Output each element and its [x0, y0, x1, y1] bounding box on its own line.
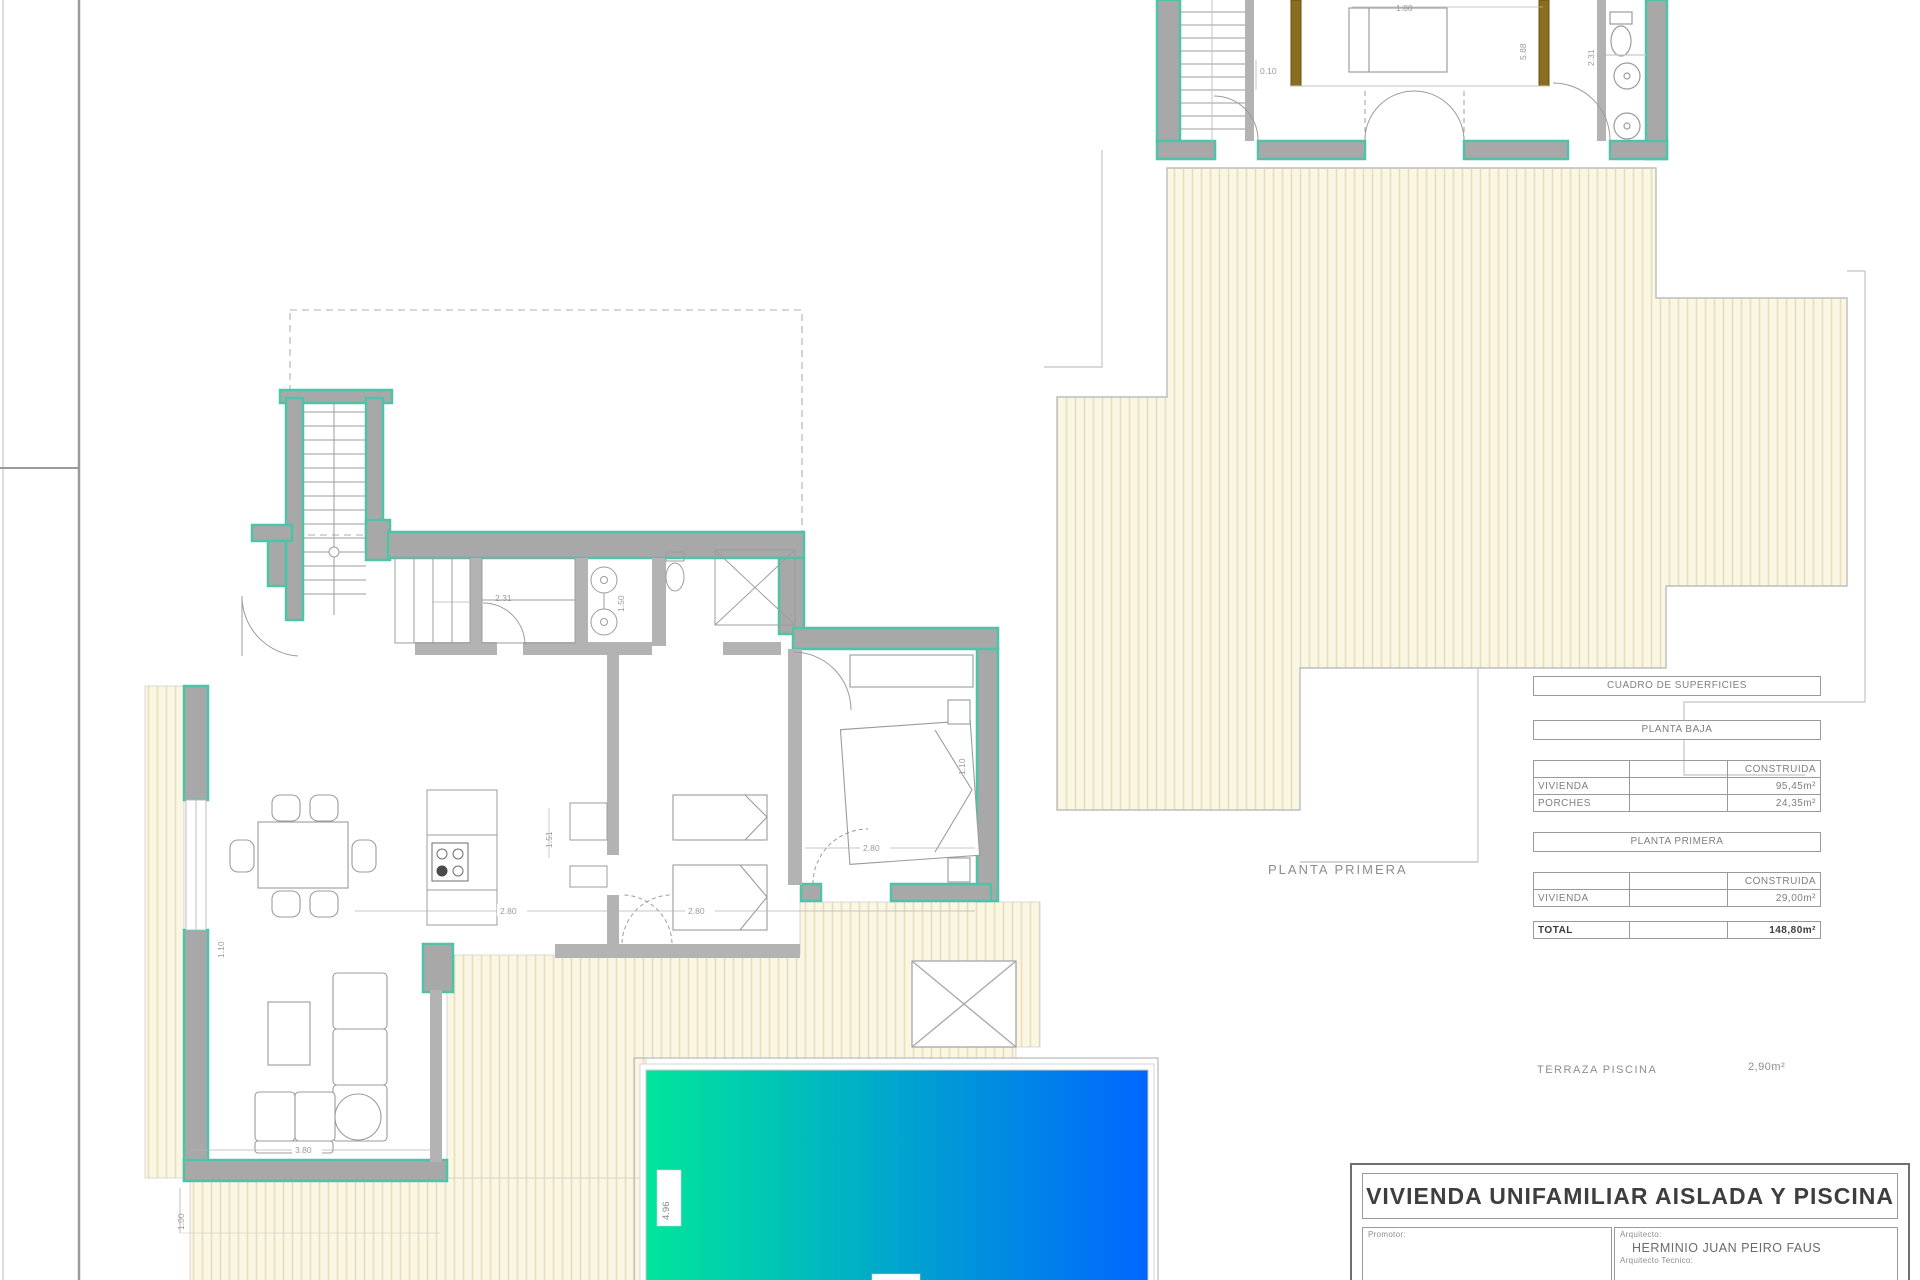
total-row: TOTAL 148,80m²: [1534, 922, 1821, 939]
top-strip-rooms: [395, 550, 795, 643]
svg-text:2.80: 2.80: [500, 906, 517, 916]
section-planta-primera: PLANTA PRIMERA: [1533, 832, 1821, 852]
architect-name: HERMINIO JUAN PEIRO FAUS: [1632, 1241, 1892, 1255]
stairs: [303, 404, 366, 615]
round-side-table: [335, 1094, 381, 1140]
table-row: PORCHES 24,35m²: [1534, 795, 1821, 812]
svg-text:1.10: 1.10: [216, 941, 226, 958]
svg-text:2.31: 2.31: [495, 593, 512, 603]
section-planta-baja: PLANTA BAJA: [1533, 720, 1821, 740]
architect-box: Arquitecto: HERMINIO JUAN PEIRO FAUS Arq…: [1614, 1227, 1898, 1280]
terraza-piscina-label: TERRAZA PISCINA: [1537, 1064, 1657, 1076]
svg-text:2.80: 2.80: [863, 843, 880, 853]
promoter-label: Promotor:: [1368, 1230, 1606, 1239]
area-table-title: CUADRO DE SUPERFICIES: [1533, 676, 1821, 696]
svg-text:5.88: 5.88: [1518, 43, 1528, 60]
col-construida-1: CONSTRUIDA: [1728, 761, 1821, 778]
first-floor-plan: 1.80 0.10 5.88 2.31: [1157, 0, 1667, 159]
planta-baja-table: CONSTRUIDA VIVIENDA 95,45m² PORCHES 24,3…: [1533, 760, 1821, 812]
planta-primera-label: PLANTA PRIMERA: [1268, 862, 1408, 877]
upper-bed: [1349, 8, 1447, 72]
table-row: VIVIENDA 95,45m²: [1534, 778, 1821, 795]
svg-text:1.80: 1.80: [1396, 3, 1413, 13]
svg-text:2.31: 2.31: [1586, 49, 1596, 66]
project-title: VIVIENDA UNIFAMILIAR AISLADA Y PISCINA: [1362, 1173, 1898, 1219]
pool: 4.96: [634, 1058, 1158, 1280]
svg-text:3.80: 3.80: [295, 1145, 312, 1155]
svg-text:1.10: 1.10: [957, 758, 967, 775]
promoter-box: Promotor:: [1362, 1227, 1612, 1280]
terraza-piscina-area: 2,90m²: [1748, 1061, 1785, 1073]
svg-text:1.50: 1.50: [616, 595, 626, 612]
svg-text:0.10: 0.10: [1260, 66, 1277, 76]
architect-label: Arquitecto:: [1620, 1230, 1892, 1239]
table-row: VIVIENDA 29,00m²: [1534, 890, 1821, 907]
upper-bathroom: [1606, 12, 1646, 139]
drawing-sheet: 1.80 0.10 5.88 2.31 4.96: [0, 0, 1920, 1280]
window-left: [186, 800, 206, 930]
col-construida-2: CONSTRUIDA: [1728, 873, 1821, 890]
pergola: [912, 961, 1016, 1047]
pool-bottom-label-cut: [872, 1274, 920, 1280]
title-block: VIVIENDA UNIFAMILIAR AISLADA Y PISCINA P…: [1350, 1163, 1910, 1280]
svg-text:2.80: 2.80: [688, 906, 705, 916]
sofa: [255, 973, 387, 1153]
total-table: TOTAL 148,80m²: [1533, 921, 1821, 939]
sheet-frame: [0, 0, 79, 1280]
floor-plan-drawing: 1.80 0.10 5.88 2.31 4.96: [0, 0, 1920, 1280]
area-summary-table: CUADRO DE SUPERFICIES PLANTA BAJA CONSTR…: [1533, 676, 1821, 939]
svg-text:1.00: 1.00: [176, 1213, 186, 1230]
technical-architect-label: Arquitecto Tecnico:: [1620, 1256, 1892, 1265]
upper-stairs: [1180, 0, 1245, 141]
dining-table: [230, 795, 376, 917]
upper-door-arcs: [1214, 83, 1610, 140]
svg-text:1.51: 1.51: [544, 831, 554, 848]
svg-text:4.96: 4.96: [661, 1202, 672, 1221]
pool-dimension: 4.96: [657, 1170, 681, 1226]
planta-primera-table: CONSTRUIDA VIVIENDA 29,00m²: [1533, 872, 1821, 907]
